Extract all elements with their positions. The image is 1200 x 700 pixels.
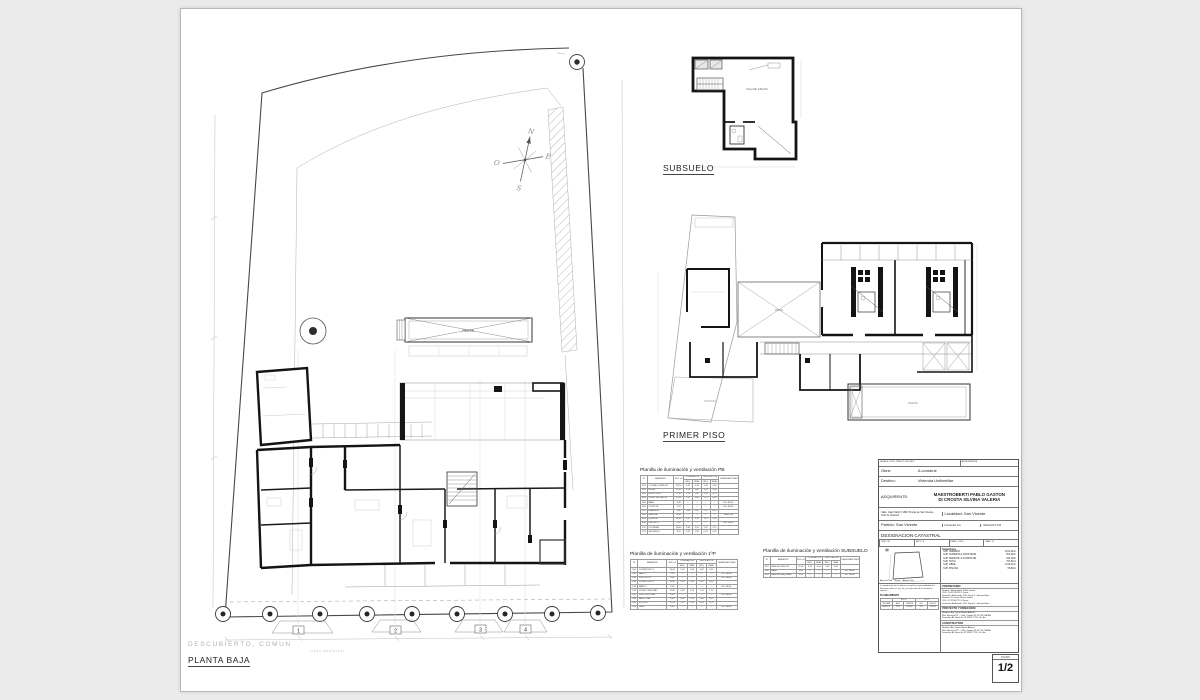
catastral-cell: PARC: 11 <box>983 540 1018 546</box>
antecedente: ANTECEDENTE <box>960 460 1018 466</box>
planilla-subsuelo-table: Nº AMBIENTE SUP. m² ILUMINACION VENTILAC… <box>763 556 860 578</box>
tree-icon <box>300 318 326 344</box>
gallery-band <box>400 383 565 440</box>
quincho-room <box>257 368 311 445</box>
descubierto-label: DESCUBIERTO, COMUN <box>188 641 292 648</box>
destino-label: Destino: <box>879 479 918 484</box>
planilla-1p-table: Nº AMBIENTE SUP. m² ILUMINACION VENTILAC… <box>630 559 738 610</box>
subsuelo-room-label: SALA DE JUEGOS <box>746 88 768 91</box>
suite-core-2 <box>926 267 958 317</box>
void-label: VACIO <box>775 308 784 312</box>
planilla-pb: Planilla de iluminación y ventilación PB… <box>640 468 739 535</box>
closet-row <box>822 245 972 260</box>
jamb <box>705 358 710 363</box>
pool-primer-piso: PILETA <box>848 384 970 420</box>
compass-s: S <box>516 184 523 193</box>
compass-icon: N S O E <box>489 122 556 198</box>
escala: ESCALAS 1:100 <box>980 524 1018 527</box>
subsuelo-drawing: SALA DE JUEGOS <box>685 48 807 173</box>
fna: Fna de Ets. No. <box>942 524 981 527</box>
destino-value: Vivienda Unifamiliar <box>918 479 1018 484</box>
jamb <box>805 358 810 363</box>
primer-piso-label: PRIMER PISO <box>663 430 725 442</box>
partido: Partido: San Vicente <box>879 523 942 528</box>
obra-value: A construir <box>918 469 1018 474</box>
table-row: E12VESTIBULO8,10 0,811,000,41 0,50 <box>641 530 739 534</box>
suite-core-1 <box>851 267 883 317</box>
grid-label-1: 1 <box>297 628 300 634</box>
planilla-subsuelo: Planilla de iluminación y ventilación SU… <box>763 549 860 578</box>
col-ambiente: AMBIENTE <box>647 476 673 484</box>
compass-e: E <box>544 152 552 161</box>
catastral-cell: SECC: S <box>914 540 949 546</box>
drawing-sheet-page: { "page": { "plano_label": "PLANO", "pla… <box>0 0 1200 700</box>
p1-pool-label: PILETA <box>908 401 918 405</box>
service-item: Alumb. Púb. <box>903 580 914 582</box>
catastral-cell: FRACC: 2223 <box>949 540 984 546</box>
primer-piso-drawing: TERRAZA VACIO <box>655 212 980 442</box>
title-block: GUIA DE CONT. TRIB. Nº 3-81 59F.3 ANTECE… <box>878 459 1019 653</box>
obra-label: Obra: <box>879 469 918 474</box>
service-item: Cloaca <box>894 580 900 582</box>
localidad: Localidad: San Vicente <box>942 512 1018 517</box>
wing-room <box>687 269 729 327</box>
compass-n: N <box>526 127 535 136</box>
planilla-1p-title: Planilla de iluminación y ventilación 1º… <box>630 552 738 557</box>
planilla-pb-table: Nº AMBIENTE SUP. m² ILUMINACION VENTILAC… <box>640 475 739 535</box>
adquirente-name-2: DI CROSTA SILVINA VALERIA <box>921 497 1018 502</box>
grid-label-2: 2 <box>394 628 397 634</box>
pool-planta-baja: PILETA <box>397 318 532 356</box>
col-n: Nº <box>641 476 648 484</box>
planeamiento-table: F.O.S. F.O.T. S/ZONIF.60%1208,53 0,81611… <box>880 598 939 610</box>
terrace-label: TERRAZA <box>704 399 716 403</box>
constructor-line: Domicilio: Av. Santa Fe Nº 5540, 2º B2 -… <box>942 632 1017 635</box>
subsuelo-walls <box>693 58 796 159</box>
col-observaciones: OBSERVACIONES <box>719 476 739 484</box>
tree-icon <box>557 53 585 70</box>
subsuelo-label: SUBSUELO <box>663 163 714 175</box>
planilla-pb-title: Planilla de iluminación y ventilación PB <box>640 468 739 473</box>
table-row: S03SALA DE MAQUINAS9,20 ——— —S.E. REGL. <box>764 573 860 577</box>
grid-label-4: 4 <box>524 627 527 633</box>
dashed-line <box>230 599 610 602</box>
street-trees <box>216 606 606 622</box>
planeamiento-row: S/PROY.27%551,62 0,4797,81 <box>881 606 939 610</box>
sheet-number-box: PLANO 1/2 <box>992 654 1019 683</box>
stair-primer-piso <box>765 343 799 354</box>
guia-cont: GUIA DE CONT. TRIB. Nº 3-81 59F.3 <box>879 460 960 466</box>
sheet-number: 1/2 <box>993 660 1018 674</box>
designacion-catastral: DESIGNACION CATASTRAL <box>879 533 1018 538</box>
street-note: LINEA MUNICIPAL <box>310 650 345 653</box>
approval-note: La aprobación de los planos no implica r… <box>880 585 939 593</box>
compass-o: O <box>493 159 501 168</box>
pool-label: PILETA <box>462 329 474 333</box>
corridor <box>760 342 972 354</box>
catastral-cell: CIRC: VII <box>879 540 914 546</box>
superficie-row: SUP. PISCINA55,80m² <box>942 568 1017 571</box>
door-jambs <box>309 458 567 543</box>
superficies: Superficies SUP. TERRENO2014,22m² SUP. C… <box>940 547 1018 583</box>
calle: Calle: Juan Pablo II 1660 "Fincas de San… <box>879 511 942 517</box>
service-item: Agua de Red <box>880 580 892 582</box>
skylights <box>923 343 969 370</box>
catastral-row: CIRC: VII SECC: S FRACC: 2223 PARC: 11 <box>879 540 1018 547</box>
planilla-subsuelo-title: Planilla de iluminación y ventilación SU… <box>763 549 860 554</box>
terrace: TERRAZA <box>668 377 753 422</box>
planilla-1p: Planilla de iluminación y ventilación 1º… <box>630 552 738 610</box>
driveway-aprons <box>272 620 547 633</box>
col-sup: SUP. m² <box>674 476 684 484</box>
grid-label-3: 3 <box>479 627 482 633</box>
central-void: VACIO <box>738 282 820 337</box>
house-footprint <box>257 440 565 568</box>
adquirente-label: ADQUIRENTE: <box>879 495 921 500</box>
planta-baja-drawing: N S O E PILETA <box>195 20 635 670</box>
parcel-sketch: Agua de RedCloacaAlumb. Púb. <box>879 547 940 583</box>
left-wing <box>668 215 737 422</box>
planta-baja-label: PLANTA BAJA <box>188 655 250 667</box>
hatched-strip <box>548 107 577 352</box>
walkway <box>312 422 432 438</box>
bedroom-block <box>822 243 972 335</box>
table-row: D10PASO6,80 ——— —S.E. REGL. <box>631 606 738 610</box>
